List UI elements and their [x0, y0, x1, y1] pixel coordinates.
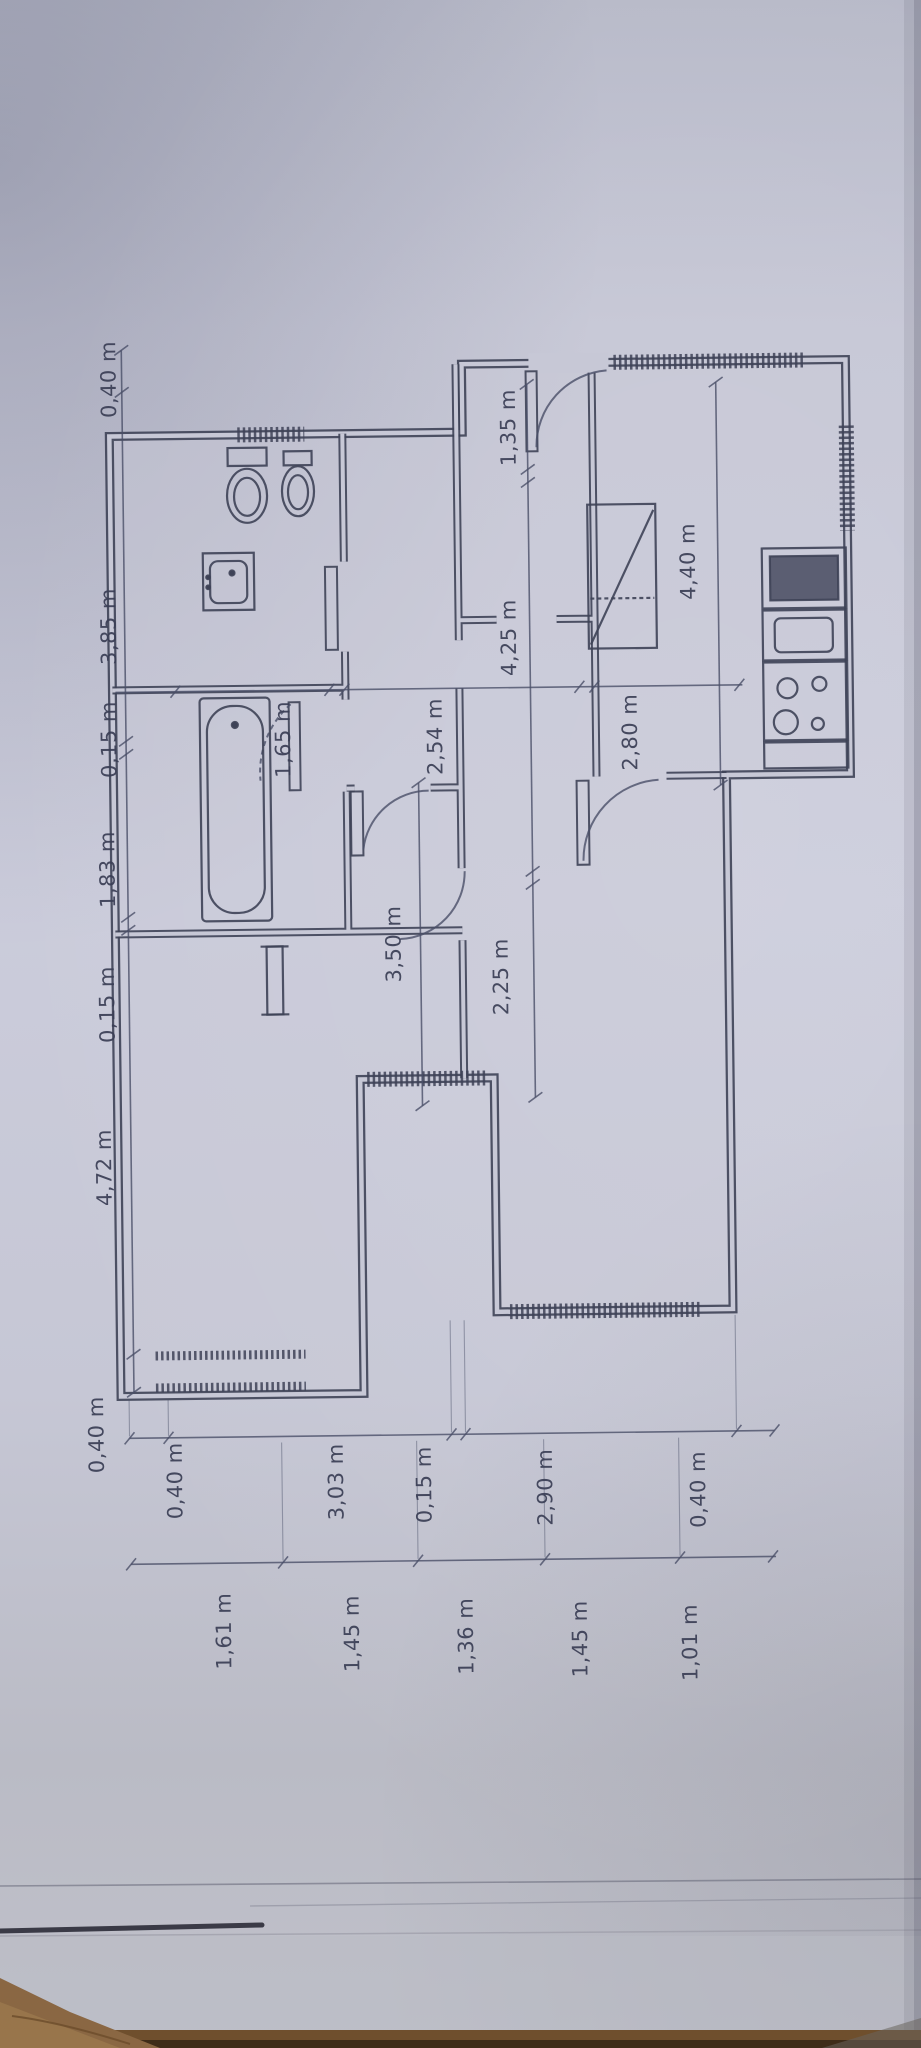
dim-label: 3,03 m: [324, 1443, 349, 1520]
dim-label-room: 2,54 m: [423, 698, 448, 775]
dim-label: 0,40 m: [96, 341, 121, 418]
dim-label: 1,61 m: [211, 1593, 236, 1670]
paper-crease-1: [0, 1879, 921, 1886]
dim-label-hall: 4,25 m: [496, 599, 521, 676]
dim-label-corridor: 2,25 m: [488, 938, 513, 1015]
apartment-footprint: [108, 359, 858, 1396]
right-edge-shadow-dark: [914, 0, 921, 2048]
floor-plan-drawing: 0,40 m 3,85 m 0,15 m 1,83 m 0,15 m 4,72 …: [71, 332, 861, 1688]
window-bedroom: [510, 1309, 700, 1311]
end-chain-outer-ticks: [124, 1424, 779, 1444]
dim-label: 0,40 m: [84, 1396, 109, 1473]
dim-label-entry: 1,35 m: [496, 389, 521, 466]
dim-label: 0,15 m: [412, 1446, 437, 1523]
dim-label: 1,36 m: [454, 1598, 479, 1675]
entry-door-gap: [528, 352, 608, 373]
dim-label: 3,85 m: [96, 588, 121, 665]
dim-label: 1,45 m: [339, 1595, 364, 1672]
under-sheet: [0, 1936, 921, 2032]
dim-label-bathroom: 1,65 m: [271, 701, 296, 778]
dim-label-kitchen-width: 2,80 m: [617, 694, 642, 771]
dim-label: 0,15 m: [95, 966, 120, 1043]
dim-label: 4,72 m: [92, 1129, 117, 1206]
dim-label: 2,90 m: [533, 1449, 558, 1526]
dim-label: 1,45 m: [568, 1600, 593, 1677]
dim-label: 0,40 m: [163, 1442, 188, 1519]
under-sheet-edge: [0, 1930, 921, 1936]
dim-label: 1,83 m: [95, 831, 120, 908]
dim-label-bedroom: 3,50 m: [381, 905, 406, 982]
paper-crease-2: [250, 1898, 921, 1906]
plan-sheet: 0,40 m 3,85 m 0,15 m 1,83 m 0,15 m 4,72 …: [0, 0, 921, 2048]
window-kitchen-top: [613, 360, 803, 362]
dim-label: 0,15 m: [97, 701, 122, 778]
dim-label: 1,01 m: [678, 1604, 703, 1681]
kitchen-sink: [762, 548, 847, 609]
dim-label: 0,40 m: [686, 1451, 711, 1528]
dim-label-kitchen-length: 4,40 m: [675, 523, 700, 600]
paper-edge-dark-line: [0, 1925, 262, 1931]
floor-plan-photo: 0,40 m 3,85 m 0,15 m 1,83 m 0,15 m 4,72 …: [0, 0, 921, 2048]
